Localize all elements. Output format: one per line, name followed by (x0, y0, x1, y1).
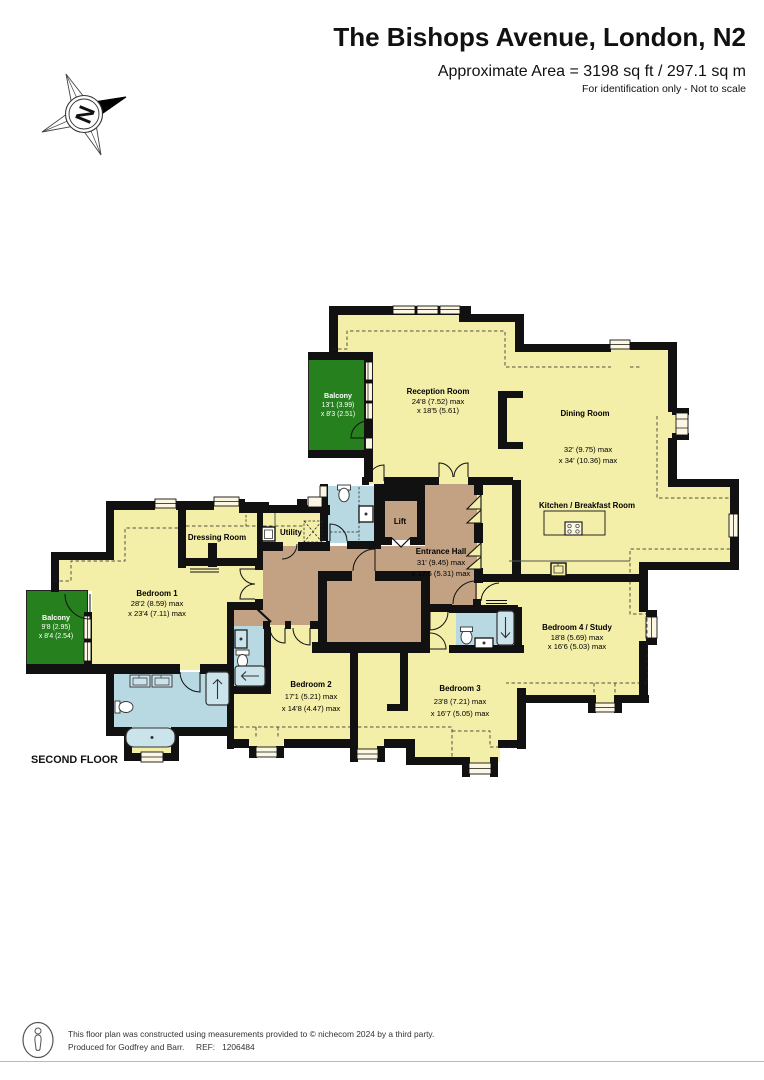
svg-text:Bedroom 4 / Study: Bedroom 4 / Study (542, 623, 612, 632)
svg-text:Balcony: Balcony (324, 391, 352, 400)
svg-text:Reception Room: Reception Room (407, 387, 470, 396)
svg-text:23'8 (7.21) max: 23'8 (7.21) max (434, 697, 487, 706)
svg-text:x 34' (10.36) max: x 34' (10.36) max (559, 456, 618, 465)
svg-text:17'1 (5.21) max: 17'1 (5.21) max (285, 692, 338, 701)
svg-text:13'1 (3.99): 13'1 (3.99) (322, 402, 355, 409)
svg-text:18'8 (5.69) max: 18'8 (5.69) max (551, 633, 604, 642)
svg-text:x 16'7 (5.05) max: x 16'7 (5.05) max (431, 709, 490, 718)
svg-text:Entrance Hall: Entrance Hall (416, 547, 466, 556)
svg-text:This floor plan was constructe: This floor plan was constructed using me… (68, 1029, 434, 1039)
svg-text:x 14'8 (4.47) max: x 14'8 (4.47) max (282, 704, 341, 713)
svg-text:9'8 (2.95): 9'8 (2.95) (42, 624, 71, 631)
svg-text:Bedroom 2: Bedroom 2 (290, 680, 332, 689)
svg-text:x 8'3 (2.51): x 8'3 (2.51) (321, 411, 355, 418)
svg-text:x 8'4 (2.54): x 8'4 (2.54) (39, 633, 73, 640)
svg-text:SECOND FLOOR: SECOND FLOOR (31, 754, 118, 766)
svg-text:Produced for Godfrey and Barr.: Produced for Godfrey and Barr. REF: 1206… (68, 1042, 255, 1052)
svg-text:The Bishops Avenue, London, N2: The Bishops Avenue, London, N2 (333, 22, 746, 52)
svg-text:Dressing Room: Dressing Room (188, 533, 246, 542)
svg-text:Bedroom 1: Bedroom 1 (136, 589, 178, 598)
svg-text:32' (9.75) max: 32' (9.75) max (564, 445, 613, 454)
svg-text:x 16'6 (5.03) max: x 16'6 (5.03) max (548, 642, 607, 651)
svg-text:28'2 (8.59) max: 28'2 (8.59) max (131, 599, 184, 608)
svg-text:24'8 (7.52) max: 24'8 (7.52) max (412, 397, 465, 406)
svg-text:Balcony: Balcony (42, 613, 70, 622)
svg-text:Kitchen / Breakfast Room: Kitchen / Breakfast Room (539, 501, 635, 510)
svg-text:31' (9.45) max: 31' (9.45) max (417, 558, 466, 567)
svg-text:x 18'5 (5.61): x 18'5 (5.61) (417, 406, 459, 415)
svg-text:Bedroom 3: Bedroom 3 (439, 684, 481, 693)
svg-text:x 23'4 (7.11) max: x 23'4 (7.11) max (128, 609, 186, 618)
svg-text:Lift: Lift (394, 517, 407, 526)
svg-text:For identification only - Not: For identification only - Not to scale (582, 83, 746, 95)
svg-text:Dining Room: Dining Room (560, 409, 609, 418)
svg-text:Utility: Utility (280, 528, 303, 537)
svg-text:Approximate Area = 3198 sq ft: Approximate Area = 3198 sq ft / 297.1 sq… (438, 63, 746, 80)
svg-text:x 17'5 (5.31) max: x 17'5 (5.31) max (412, 569, 471, 578)
